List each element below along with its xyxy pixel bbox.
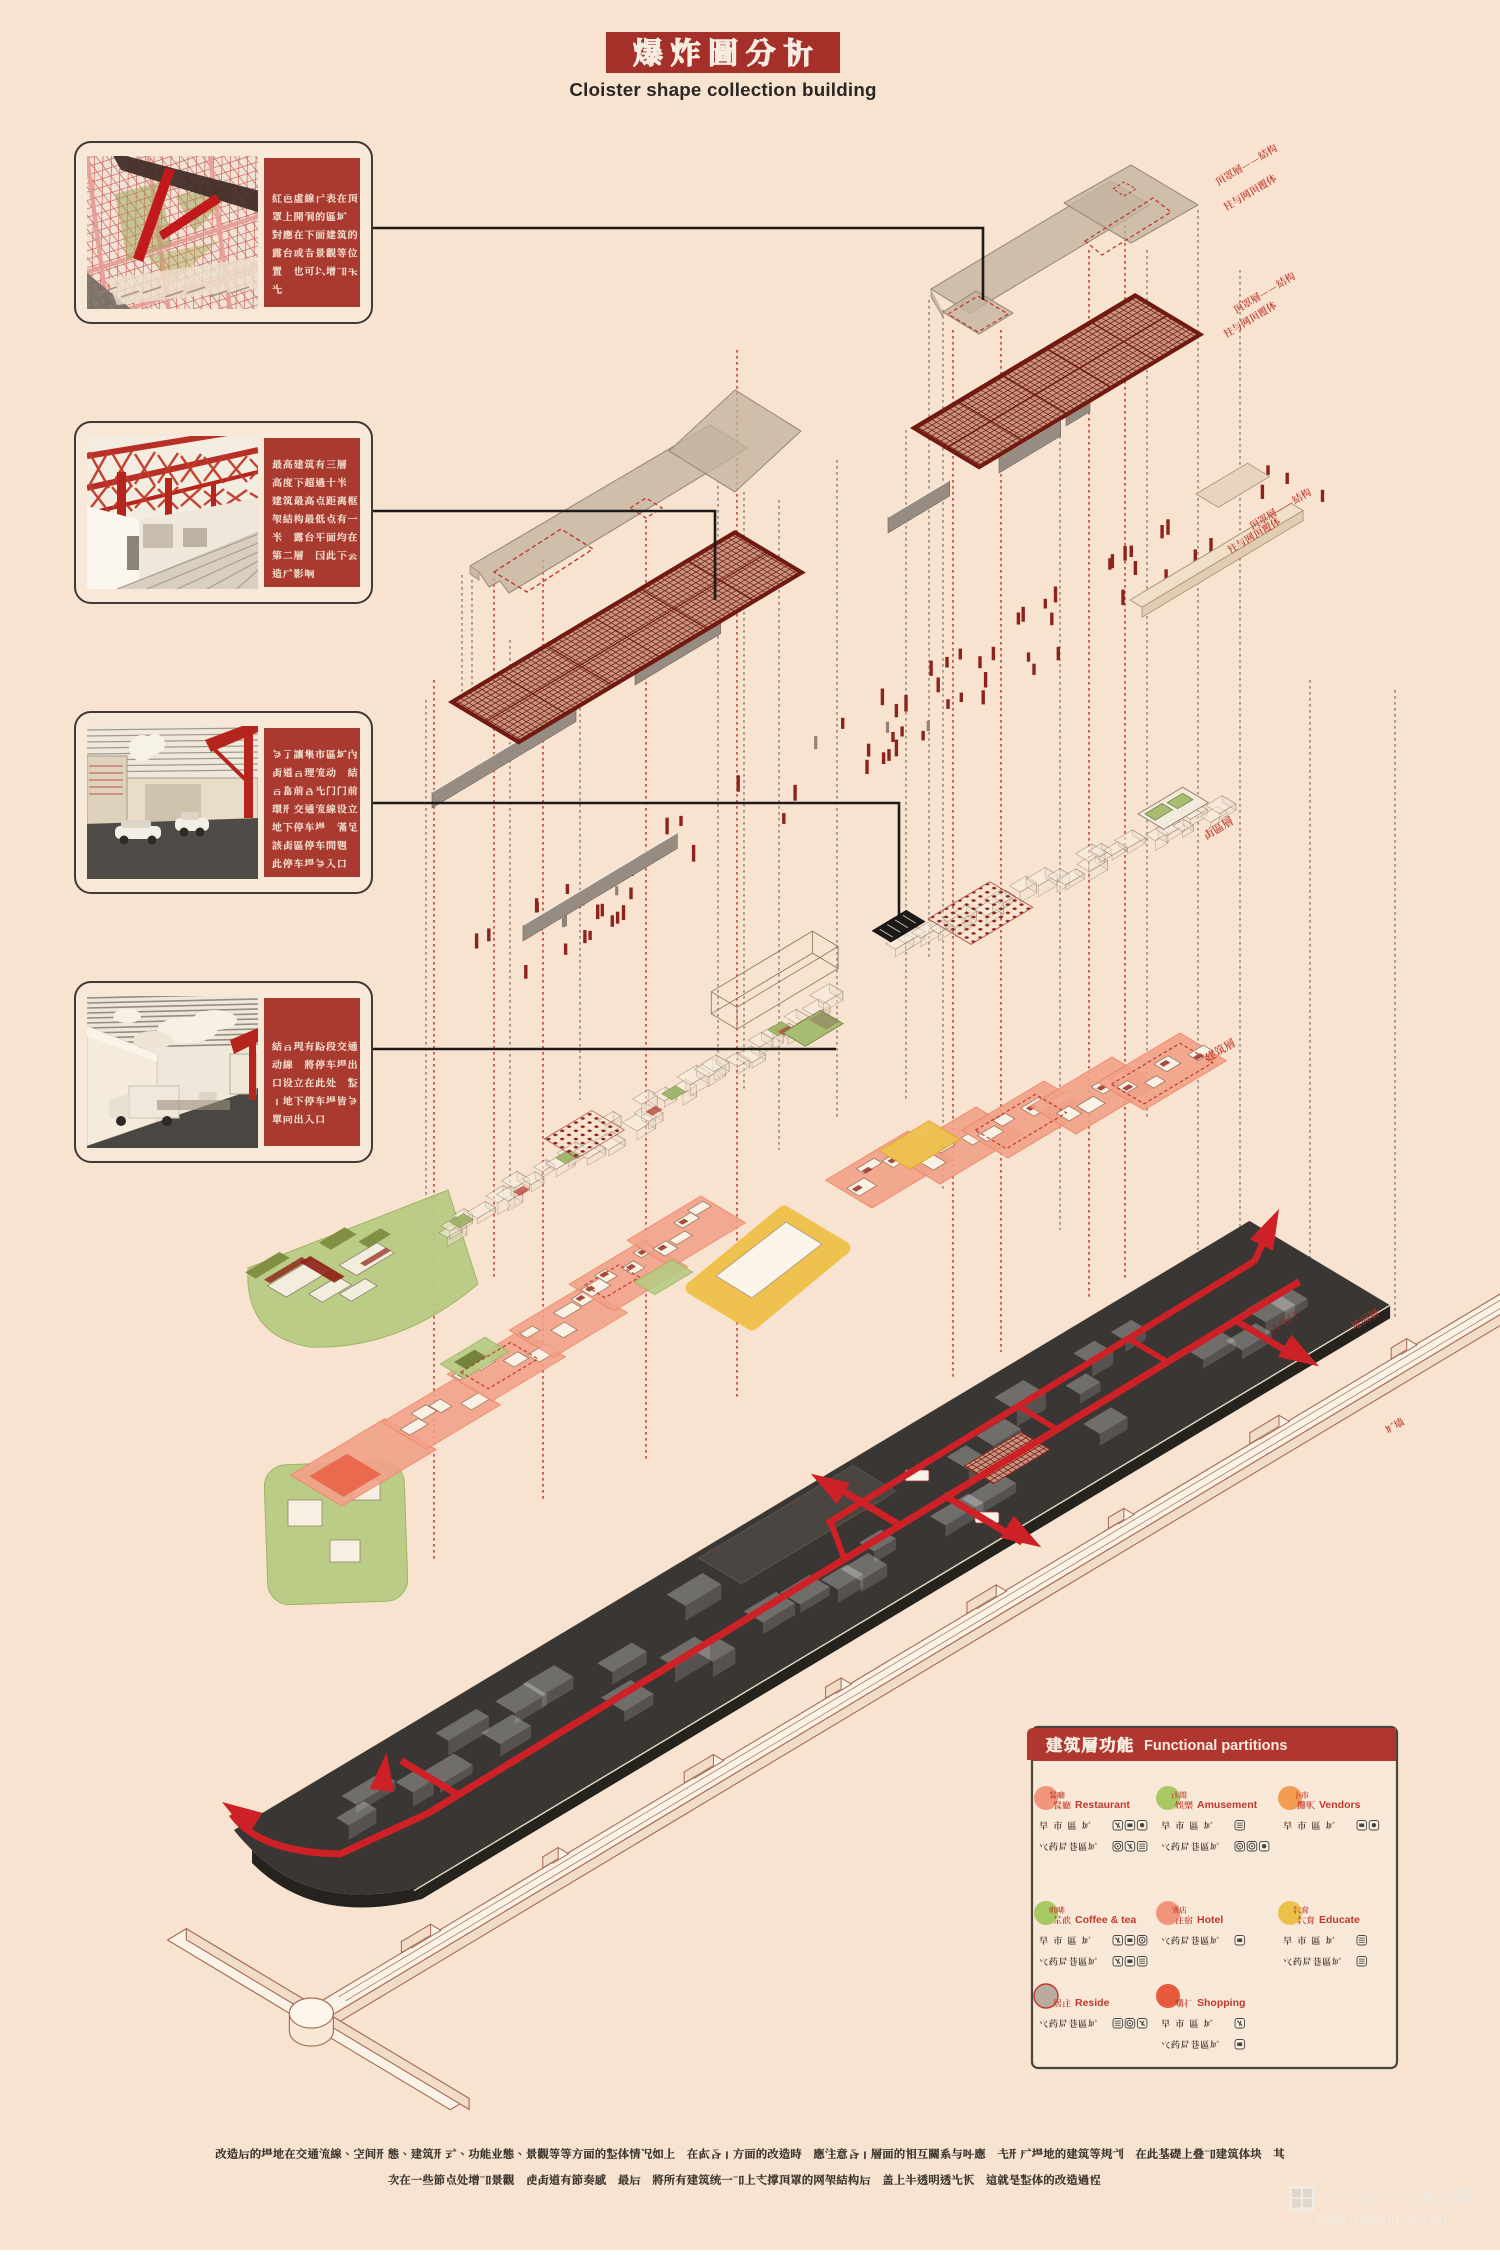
svg-text:Restaurant: Restaurant [1075,1799,1130,1811]
svg-text:Vendors: Vendors [1319,1799,1361,1811]
svg-text:Hotel: Hotel [1197,1914,1223,1926]
svg-text:Amusement: Amusement [1197,1799,1258,1811]
svg-text:Cloister shape collection buil: Cloister shape collection building [569,79,876,100]
svg-text:Shopping: Shopping [1197,1997,1245,2009]
svg-text:Educate: Educate [1319,1914,1360,1926]
svg-text:Coffee & tea: Coffee & tea [1075,1914,1136,1926]
svg-text:Reside: Reside [1075,1997,1110,2009]
svg-text:xafa.meishu.org.cn: xafa.meishu.org.cn [1316,2211,1447,2228]
svg-text:Functional partitions: Functional partitions [1144,1738,1287,1754]
